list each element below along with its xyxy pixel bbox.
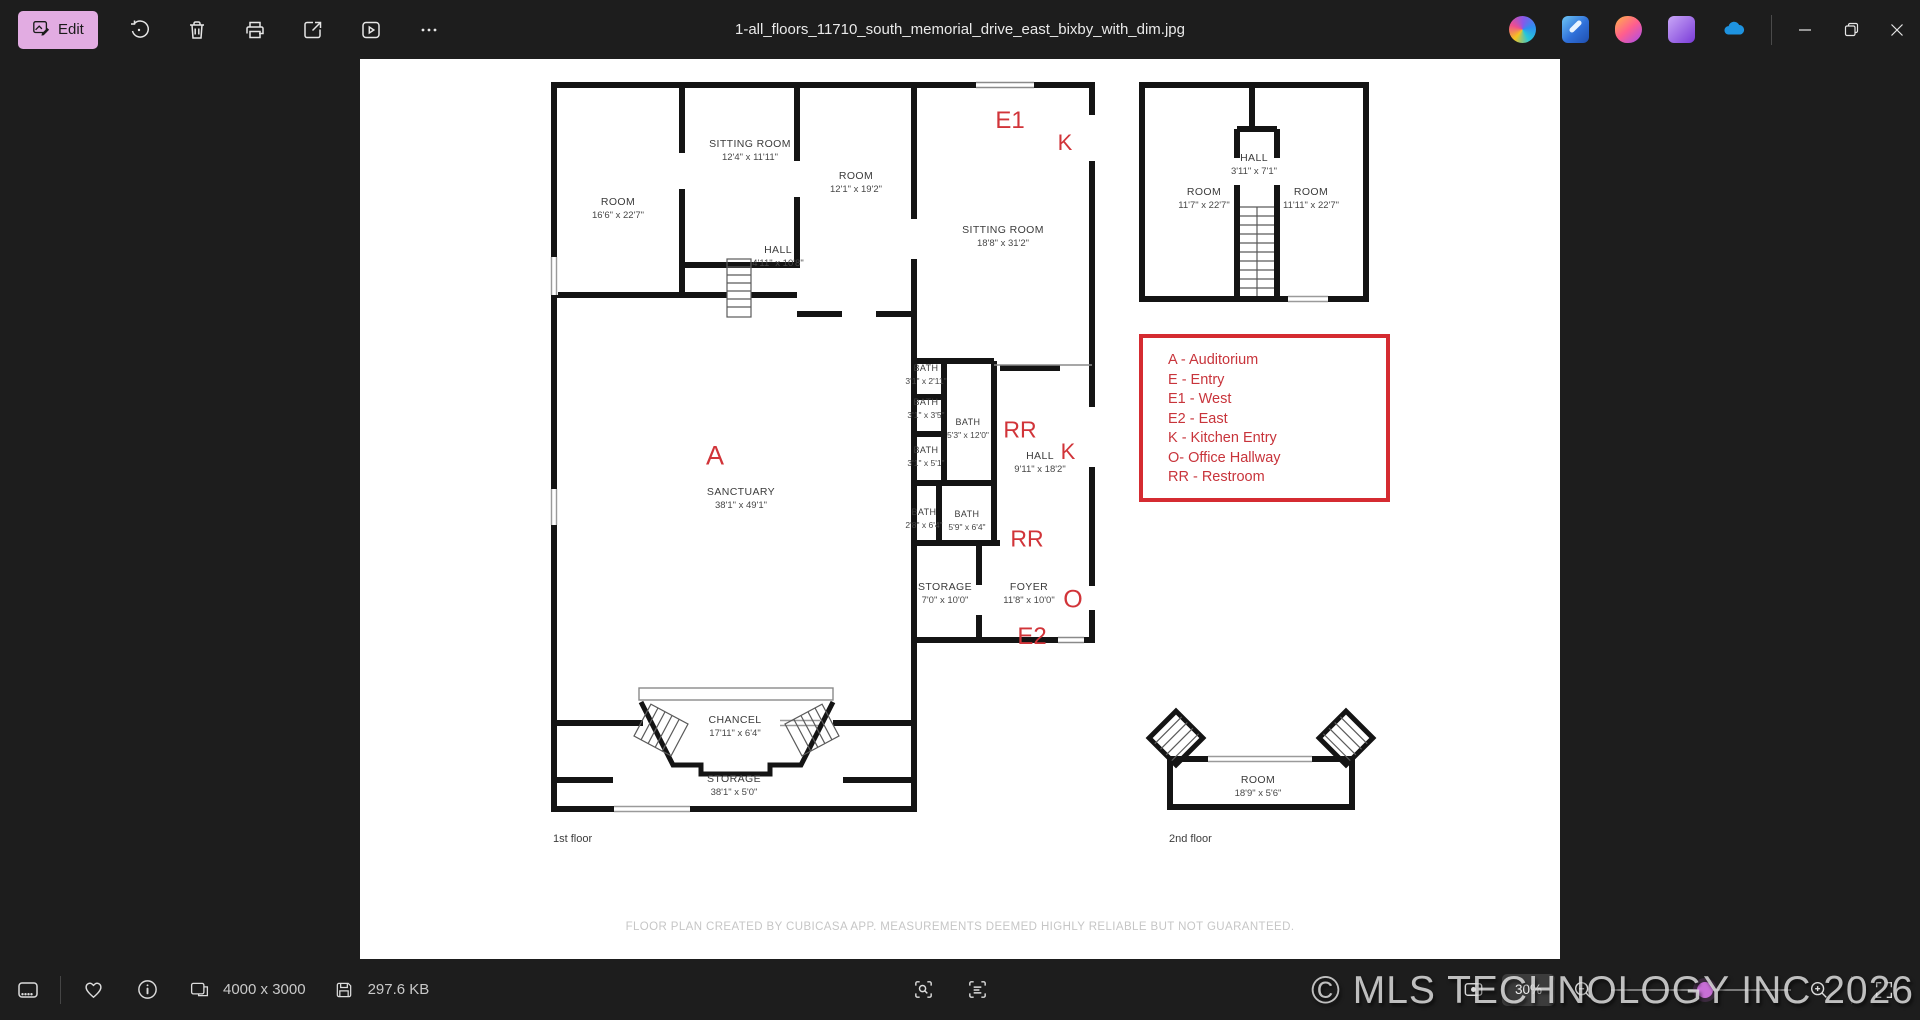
photos-app-icon[interactable] [1562, 16, 1589, 43]
close-button[interactable] [1874, 0, 1920, 59]
rotate-icon[interactable] [122, 13, 156, 47]
room-label: BATH3'1" x 2'11" [905, 362, 946, 388]
legend-box: A - Auditorium E - Entry E1 - West E2 - … [1139, 334, 1390, 502]
file-size-icon [326, 972, 362, 1008]
entry-marker: A [706, 441, 724, 472]
zoom-level-button[interactable]: 30% [1502, 974, 1555, 1006]
edit-button[interactable]: Edit [18, 11, 98, 49]
text-extract-icon[interactable] [959, 972, 995, 1008]
image-viewer-canvas[interactable]: SITTING ROOM12'4" x 11'11" ROOM12'1" x 1… [0, 59, 1920, 959]
minimize-button[interactable] [1782, 0, 1828, 59]
entry-marker: RR [1003, 417, 1036, 444]
titlebar-separator [1771, 15, 1772, 45]
edit-button-label: Edit [58, 21, 84, 38]
filmstrip-toggle-icon[interactable] [10, 972, 46, 1008]
file-size: 297.6 KB [368, 981, 430, 998]
status-bar: 4000 x 3000 297.6 KB 30% [0, 959, 1920, 1020]
image-dimensions-icon [181, 972, 217, 1008]
delete-icon[interactable] [180, 13, 214, 47]
toolbar: Edit [18, 0, 446, 59]
entry-marker: E2 [1017, 623, 1046, 651]
designer-icon[interactable] [1615, 16, 1642, 43]
room-label: STORAGE7'0" x 10'0" [918, 581, 972, 607]
visual-search-icon[interactable] [905, 972, 941, 1008]
copilot-icon[interactable] [1509, 16, 1536, 43]
zoom-slider-thumb[interactable] [1697, 982, 1713, 998]
room-label: ROOM11'7" x 22'7" [1178, 186, 1229, 212]
legend-item: E - Entry [1168, 371, 1386, 391]
legend-item: E2 - East [1168, 410, 1386, 430]
zoom-in-icon[interactable] [1801, 972, 1837, 1008]
slideshow-icon[interactable] [354, 13, 388, 47]
statusbar-separator [1851, 976, 1852, 1004]
room-label: BATH3'1" x 5'1" [907, 444, 944, 470]
legend-item: E1 - West [1168, 390, 1386, 410]
room-label: SITTING ROOM18'8" x 31'2" [962, 224, 1044, 250]
more-options-icon[interactable] [412, 13, 446, 47]
room-label: STORAGE38'1" x 5'0" [707, 773, 761, 799]
room-label: SANCTUARY38'1" x 49'1" [707, 486, 775, 512]
room-label: ROOM18'9" x 5'6" [1235, 774, 1282, 800]
room-label: HALL9'11" x 18'2" [1014, 450, 1065, 476]
zoom-slider[interactable] [1611, 974, 1791, 1006]
statusbar-separator [60, 976, 61, 1004]
room-label: FOYER11'8" x 10'0" [1003, 581, 1054, 607]
room-label: HALL4'11" x 10'8" [752, 244, 803, 270]
floor2-label: 2nd floor [1169, 833, 1212, 845]
room-label: ROOM16'6" x 22'7" [592, 196, 644, 222]
fullscreen-icon[interactable] [1866, 972, 1902, 1008]
entry-marker: RR [1010, 526, 1043, 553]
room-label: ROOM12'1" x 19'2" [830, 170, 882, 196]
info-icon[interactable] [129, 972, 165, 1008]
legend-item: A - Auditorium [1168, 351, 1386, 371]
room-label: CHANCEL17'11" x 6'4" [709, 714, 762, 740]
legend-item: O- Office Hallway [1168, 449, 1386, 469]
entry-marker: K [1061, 439, 1076, 465]
restore-button[interactable] [1828, 0, 1874, 59]
fit-to-window-icon[interactable] [1456, 972, 1492, 1008]
legend-item: RR - Restroom [1168, 468, 1386, 488]
share-icon[interactable] [296, 13, 330, 47]
room-label: BATH5'9" x 6'4" [948, 508, 985, 534]
floorplan-image: SITTING ROOM12'4" x 11'11" ROOM12'1" x 1… [360, 59, 1560, 959]
room-label: HALL3'11" x 7'1" [1231, 152, 1277, 178]
entry-marker: K [1058, 130, 1073, 156]
room-label: ROOM11'11" x 22'7" [1283, 186, 1339, 212]
room-label: SITTING ROOM12'4" x 11'11" [709, 138, 791, 164]
favorite-heart-icon[interactable] [75, 972, 111, 1008]
onedrive-icon[interactable] [1721, 16, 1748, 43]
floorplan-disclaimer: FLOOR PLAN CREATED BY CUBICASA APP. MEAS… [360, 921, 1560, 933]
zoom-out-icon[interactable] [1565, 972, 1601, 1008]
entry-marker: E1 [995, 107, 1024, 135]
floor1-label: 1st floor [553, 833, 592, 845]
title-bar: Edit 1-all_floors_11710_south_memorial_d… [0, 0, 1920, 59]
room-label: BATH5'3" x 12'0" [947, 416, 989, 442]
entry-marker: O [1063, 586, 1082, 615]
image-dimensions: 4000 x 3000 [223, 981, 306, 998]
clipchamp-icon[interactable] [1668, 16, 1695, 43]
print-icon[interactable] [238, 13, 272, 47]
titlebar-right [1496, 0, 1920, 59]
legend-item: K - Kitchen Entry [1168, 429, 1386, 449]
room-label: BATH2'8" x 6'4" [905, 506, 942, 532]
room-label: BATH3'1" x 3'5" [907, 396, 944, 422]
edit-image-icon [32, 19, 50, 41]
